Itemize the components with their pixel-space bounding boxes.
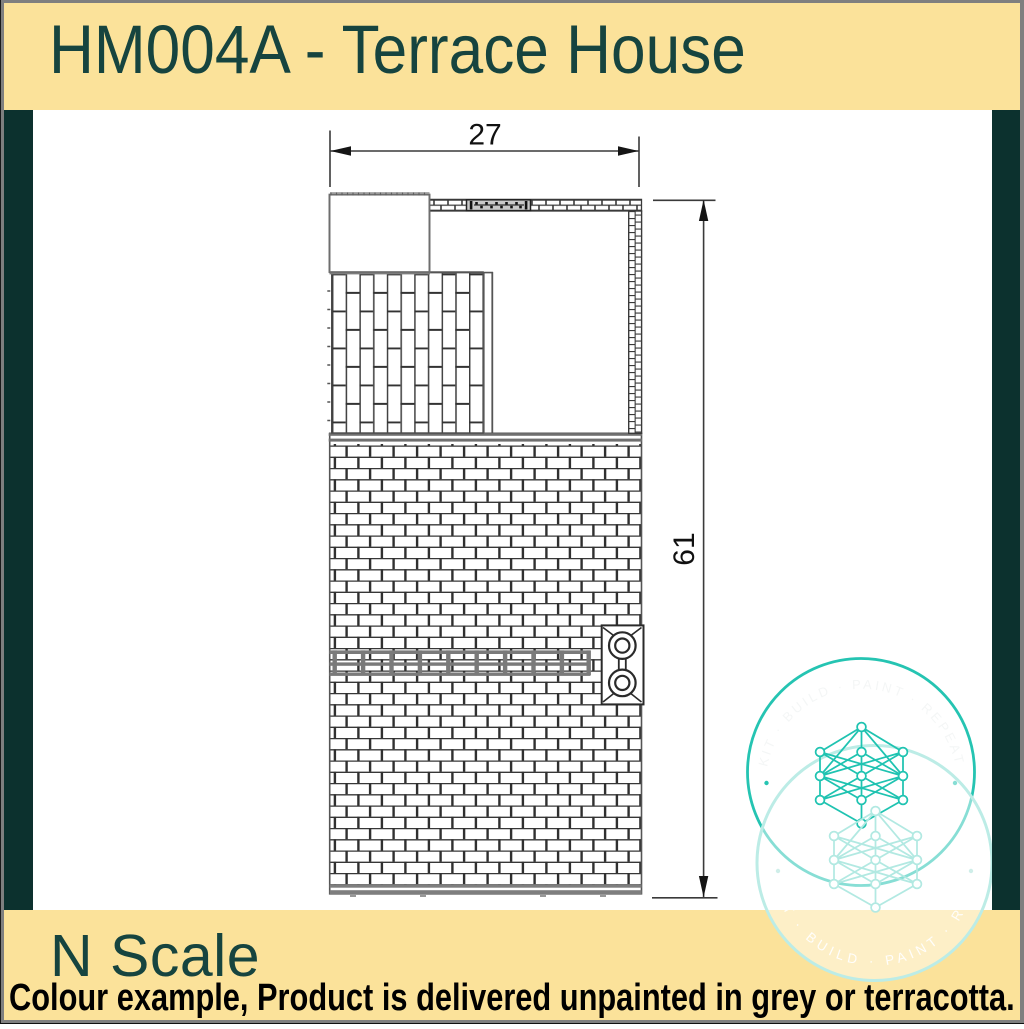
svg-text:27: 27	[468, 119, 501, 152]
svg-text:61: 61	[668, 532, 701, 565]
